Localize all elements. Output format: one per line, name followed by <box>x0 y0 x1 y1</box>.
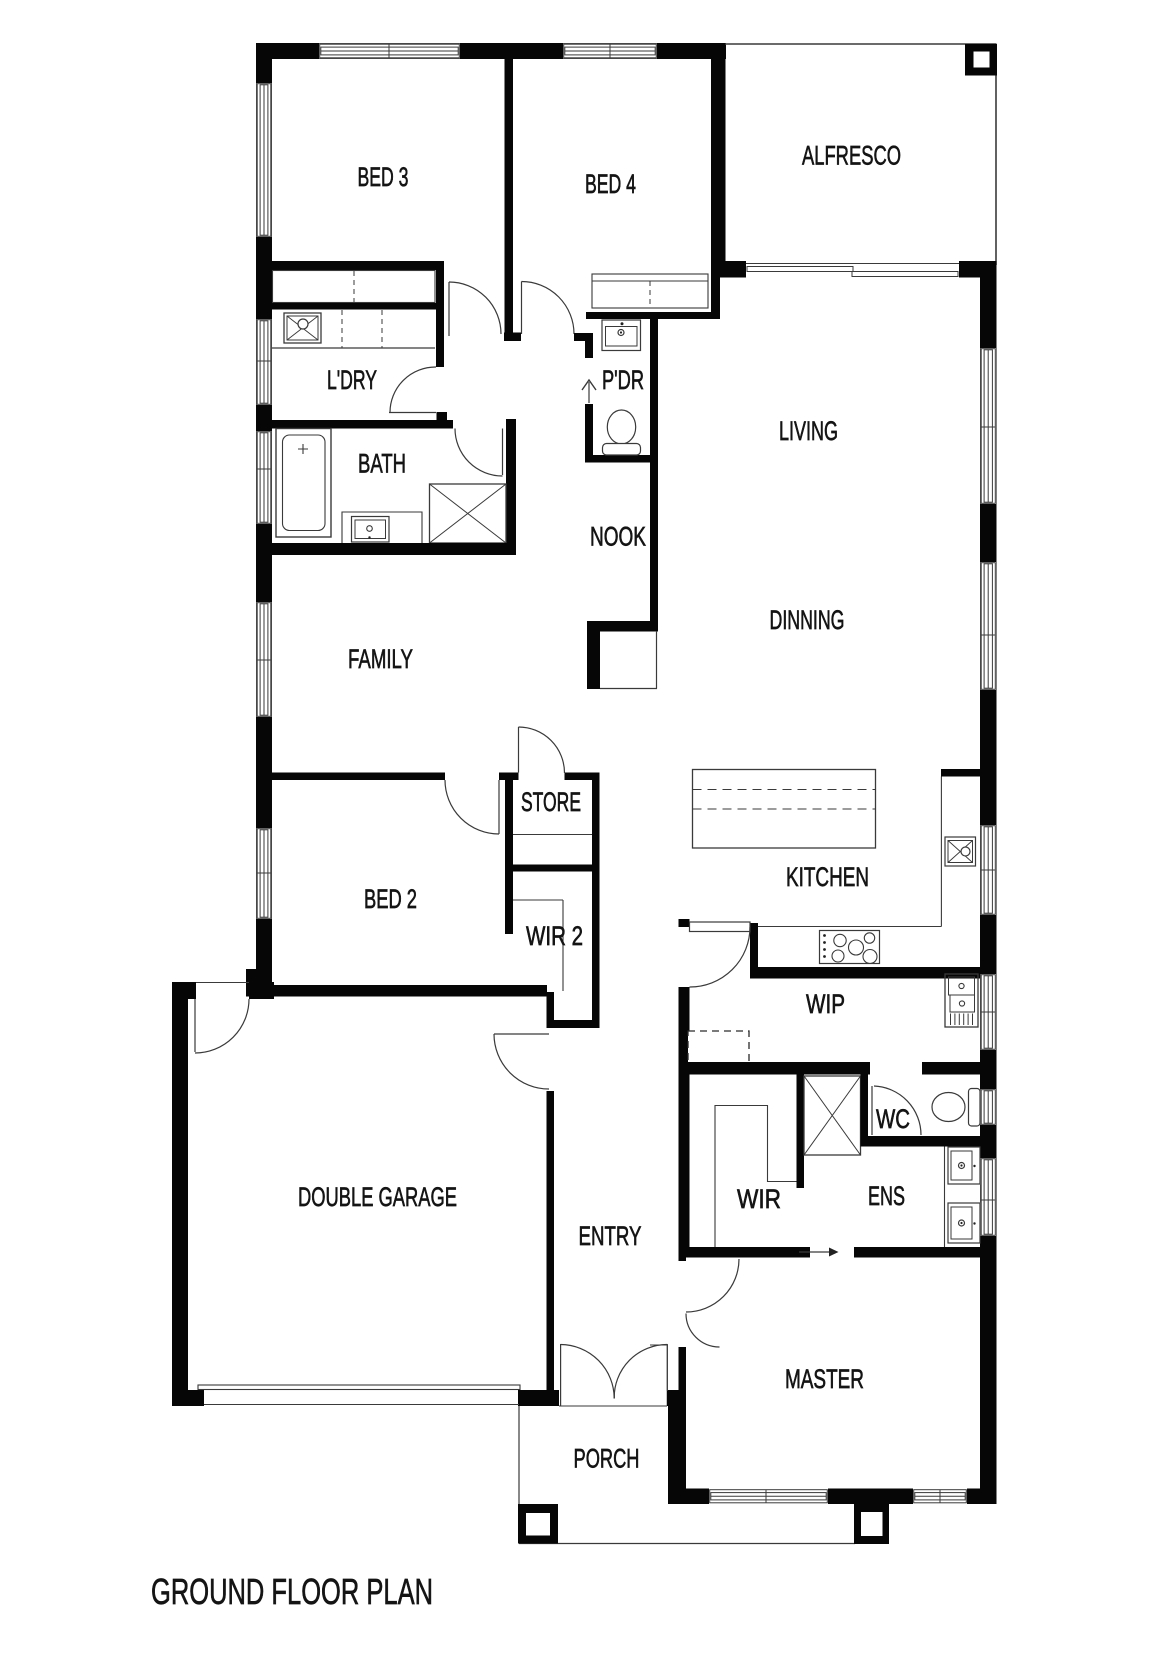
svg-text:BATH: BATH <box>358 449 406 479</box>
svg-text:KITCHEN: KITCHEN <box>786 862 869 892</box>
svg-text:ALFRESCO: ALFRESCO <box>802 141 901 171</box>
svg-text:WIR 2: WIR 2 <box>526 921 583 951</box>
svg-text:DINNING: DINNING <box>770 605 845 635</box>
svg-text:ENTRY: ENTRY <box>579 1221 642 1251</box>
svg-text:P'DR: P'DR <box>602 365 644 395</box>
svg-text:WIR: WIR <box>737 1184 781 1214</box>
svg-text:FAMILY: FAMILY <box>348 644 413 674</box>
svg-text:BED 2: BED 2 <box>364 884 417 914</box>
svg-text:DOUBLE GARAGE: DOUBLE GARAGE <box>298 1182 457 1212</box>
svg-text:MASTER: MASTER <box>785 1364 864 1394</box>
svg-text:L'DRY: L'DRY <box>327 365 377 395</box>
svg-text:ENS: ENS <box>868 1181 905 1211</box>
svg-text:LIVING: LIVING <box>779 416 838 446</box>
svg-text:PORCH: PORCH <box>574 1444 640 1474</box>
svg-text:WIP: WIP <box>806 989 845 1019</box>
svg-text:BED 4: BED 4 <box>585 169 636 199</box>
svg-text:WC: WC <box>876 1104 910 1134</box>
svg-text:STORE: STORE <box>521 787 581 817</box>
svg-text:BED 3: BED 3 <box>358 162 409 192</box>
svg-text:NOOK: NOOK <box>590 522 646 552</box>
svg-text:GROUND FLOOR PLAN: GROUND FLOOR PLAN <box>151 1571 433 1612</box>
